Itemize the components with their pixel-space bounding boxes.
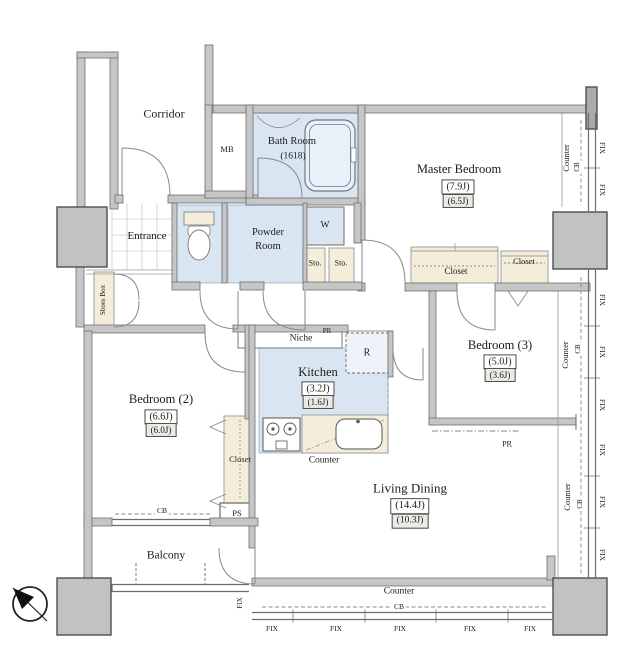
bedroom3-area-net: (3.6J): [485, 368, 516, 382]
compass-icon: [13, 587, 47, 621]
powder-room-label-2: Room: [255, 241, 281, 253]
column-left: [57, 207, 107, 267]
column-bottom-left: [57, 578, 111, 635]
balcony-partition: [136, 563, 205, 584]
closet-folding-mark: [508, 291, 528, 306]
fix-label-bottom-5: FIX: [524, 625, 536, 633]
kitchen-sink: [336, 419, 382, 449]
bathroom-label: Bath Room: [268, 136, 316, 148]
toilet-bowl: [188, 230, 210, 260]
right-cb-label-2: CB: [575, 342, 583, 355]
fix-label-bottom-4: FIX: [464, 625, 476, 633]
kitchen-counter-label: Counter: [309, 456, 340, 467]
column-right: [553, 212, 607, 269]
balcony-label: Balcony: [147, 550, 185, 563]
bathroom-size-label: (1618): [280, 152, 305, 163]
right-counter-label-2: Counter: [561, 341, 571, 368]
bedroom2-closet-label: Closet: [229, 455, 251, 465]
washer-label: W: [321, 221, 330, 232]
storage-label-2: Sto.: [335, 260, 348, 269]
master-closet-label-2: Closet: [513, 257, 535, 267]
bottom-cb-label: CB: [392, 603, 406, 611]
niche-label: Niche: [290, 334, 313, 345]
living-dining-area-net: (10.3J): [392, 514, 429, 529]
faucet: [356, 420, 360, 424]
fix-label-balcony: FIX: [237, 597, 245, 608]
bedroom2-window: [112, 520, 210, 526]
fix-label-right-6: FIX: [598, 444, 606, 456]
fix-window-right: [589, 113, 596, 578]
toilet-tank: [184, 212, 214, 225]
stove: [263, 418, 300, 451]
entrance-door: [122, 148, 170, 196]
master-bedroom-area-net: (6.5J): [443, 194, 474, 208]
balcony-door: [219, 548, 255, 584]
living-door: [393, 348, 423, 380]
right-cb-label-1: CB: [574, 160, 582, 173]
shoes-box-label: Shoes Box: [100, 285, 108, 315]
toilet-door: [200, 291, 238, 329]
fix-label-right-3: FIX: [598, 294, 606, 306]
floor-plan-linework: [0, 0, 641, 669]
meter-box-label: MB: [220, 145, 233, 155]
master-bedroom-area: (7.9J): [441, 179, 474, 194]
pipe-shaft-label: PS: [232, 509, 241, 519]
niche-pr-label: PR: [323, 328, 332, 336]
fix-label-right-7: FIX: [598, 496, 606, 508]
entrance-label: Entrance: [127, 230, 166, 242]
bedroom2-label: Bedroom (2): [129, 392, 193, 406]
bottom-counter-label: Counter: [384, 587, 415, 598]
column-bottom-right: [553, 578, 607, 635]
right-counter-label-3: Counter: [563, 483, 573, 510]
fix-label-right-4: FIX: [598, 346, 606, 358]
master-closet-label-1: Closet: [444, 266, 467, 276]
master-bedroom-label: Master Bedroom: [417, 162, 501, 176]
living-dining-label: Living Dining: [373, 482, 447, 497]
fix-label-right-2: FIX: [598, 184, 606, 196]
bedroom3-door: [457, 291, 495, 330]
master-bedroom-door: [362, 240, 405, 283]
kitchen-area-net: (1.6J): [303, 395, 334, 409]
right-cb-label-3: CB: [577, 497, 585, 510]
powder-room-door: [263, 291, 305, 330]
powder-room-label-1: Powder: [252, 227, 284, 239]
right-counter-label-1: Counter: [562, 144, 572, 171]
fix-label-bottom-2: FIX: [330, 625, 342, 633]
balcony-railing: [112, 584, 249, 592]
living-dining-area: (14.4J): [390, 498, 429, 514]
bedroom3-label: Bedroom (3): [468, 338, 532, 352]
bathtub: [305, 120, 355, 191]
fix-label-right-1: FIX: [598, 142, 606, 154]
corridor-label: Corridor: [143, 107, 184, 120]
refrigerator-label: R: [364, 347, 371, 358]
fix-label-right-8: FIX: [598, 549, 606, 561]
kitchen-label: Kitchen: [298, 365, 338, 379]
bedroom2-cb-label: CB: [155, 507, 169, 515]
fix-label-bottom-3: FIX: [394, 625, 406, 633]
fix-label-right-5: FIX: [598, 399, 606, 411]
bedroom2-area-net: (6.0J): [146, 423, 177, 437]
storage-label-1: Sto.: [309, 260, 322, 269]
fix-label-bottom-1: FIX: [266, 625, 278, 633]
shoes-box-folding-door: [114, 274, 139, 327]
floor-plan: Corridor MB Bath Room (1618) Entrance Po…: [0, 0, 641, 669]
bedroom3-pr-label: PR: [502, 441, 512, 450]
